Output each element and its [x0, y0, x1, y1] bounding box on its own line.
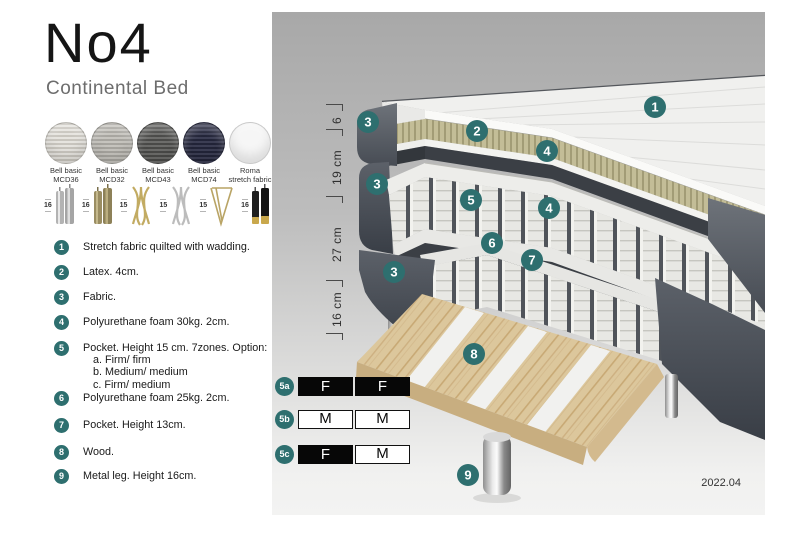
list-item: 6 Polyurethane foam 25kg. 2cm.	[54, 391, 229, 406]
callout-7: 7	[521, 249, 543, 271]
dimension-label: 27 cm	[330, 214, 352, 274]
callout-8: 8	[463, 343, 485, 365]
dimension-label: 16 cm	[330, 284, 352, 334]
svg-text:3: 3	[373, 177, 380, 192]
svg-text:5: 5	[467, 193, 474, 208]
item-number-badge: 7	[54, 418, 69, 433]
leg-icon-curved-gold	[128, 183, 154, 227]
item-number-badge: 5	[54, 341, 69, 356]
fabric-swatch-icon	[91, 122, 133, 164]
callout-3: 3	[357, 111, 379, 133]
svg-text:8: 8	[470, 347, 477, 362]
leg-icon-curved-silver	[168, 183, 194, 227]
item-number-badge: 3	[54, 290, 69, 305]
fabric-swatch-icon	[183, 122, 225, 164]
list-item: 7 Pocket. Height 13cm.	[54, 418, 186, 433]
svg-text:4: 4	[543, 144, 551, 159]
fabric-swatch-icon	[45, 122, 87, 164]
callout-6: 6	[481, 232, 503, 254]
leg-option: 16	[44, 183, 77, 227]
pocket-options: a. Firm/ firmb. Medium/ mediumc. Firm/ m…	[93, 354, 188, 391]
item-number-badge: 1	[54, 240, 69, 255]
page-subtitle: Continental Bed	[46, 78, 189, 100]
leg-icon-hairpin	[208, 183, 236, 227]
callout-3: 3	[366, 173, 388, 195]
firmness-row-5b: 5b M M	[275, 410, 410, 429]
svg-text:4: 4	[545, 201, 553, 216]
leg-options: 16 16 15 15	[44, 182, 272, 228]
metal-leg-front	[483, 435, 511, 495]
version-stamp: 2022.04	[701, 477, 741, 489]
list-item: 2 Latex. 4cm.	[54, 265, 139, 280]
item-number-badge: 4	[54, 315, 69, 330]
fabric-swatch-icon	[137, 122, 179, 164]
ruler-tick	[326, 196, 343, 203]
list-item: 8 Wood.	[54, 445, 114, 460]
item-number-badge: 8	[54, 445, 69, 460]
dimension-label: 19 cm	[330, 140, 352, 194]
bed-diagram-panel: 1 2 3 3 3 4 4 5 6 7 8 9 6 19 cm 27 c	[272, 12, 765, 515]
svg-text:6: 6	[488, 236, 495, 251]
fabric-swatch: Bell basicMCD43	[136, 122, 180, 184]
callout-5: 5	[460, 189, 482, 211]
firmness-cell: F	[355, 377, 410, 396]
firmness-cell: M	[355, 445, 410, 464]
callout-2: 2	[466, 120, 488, 142]
dimension-label: 6	[330, 108, 352, 132]
svg-text:2: 2	[473, 124, 480, 139]
leg-icon-cylinder-bronze	[91, 183, 115, 227]
firmness-badge: 5c	[275, 445, 294, 464]
fabric-swatch: Romastretch fabric	[228, 122, 272, 184]
spec-sheet: No4 Continental Bed Bell basicMCD36 Bell…	[0, 0, 800, 533]
firmness-badge: 5b	[275, 410, 294, 429]
callout-9: 9	[457, 464, 479, 486]
firmness-cell: F	[298, 377, 353, 396]
item-number-badge: 6	[54, 391, 69, 406]
svg-text:3: 3	[364, 115, 371, 130]
svg-text:3: 3	[390, 265, 397, 280]
callout-4: 4	[536, 140, 558, 162]
fabric-swatch: Bell basicMCD74	[182, 122, 226, 184]
callout-3: 3	[383, 261, 405, 283]
firmness-cell: F	[298, 445, 353, 464]
svg-text:9: 9	[464, 468, 471, 483]
fabric-swatch-icon	[229, 122, 271, 164]
fabric-swatches: Bell basicMCD36 Bell basicMCD32 Bell bas…	[44, 122, 272, 184]
list-item: 9 Metal leg. Height 16cm.	[54, 469, 196, 484]
metal-leg-right	[665, 374, 678, 418]
fabric-swatch: Bell basicMCD32	[90, 122, 134, 184]
firmness-cell: M	[298, 410, 353, 429]
item-number-badge: 9	[54, 469, 69, 484]
svg-text:7: 7	[528, 253, 535, 268]
ruler-tick	[326, 333, 343, 340]
firmness-row-5c: 5c F M	[275, 445, 410, 464]
svg-text:1: 1	[651, 100, 658, 115]
leg-option: 16	[241, 183, 272, 227]
list-item: 3 Fabric.	[54, 290, 116, 305]
leg-option: 15	[120, 183, 155, 227]
fabric-swatch: Bell basicMCD36	[44, 122, 88, 184]
page-title: No4	[44, 10, 153, 75]
list-item: 1 Stretch fabric quilted with wadding.	[54, 240, 250, 255]
list-item: 4 Polyurethane foam 30kg. 2cm.	[54, 315, 229, 330]
firmness-cell: M	[355, 410, 410, 429]
callout-1: 1	[644, 96, 666, 118]
firmness-row-5a: 5a F F	[275, 377, 410, 396]
leg-icon-cylinder-black-gold	[250, 183, 272, 227]
leg-option: 15	[159, 183, 194, 227]
item-number-badge: 2	[54, 265, 69, 280]
firmness-badge: 5a	[275, 377, 294, 396]
callout-4: 4	[538, 197, 560, 219]
leg-option: 15	[199, 183, 236, 227]
leg-icon-cylinder-chrome	[53, 183, 77, 227]
leg-option: 16	[82, 183, 115, 227]
